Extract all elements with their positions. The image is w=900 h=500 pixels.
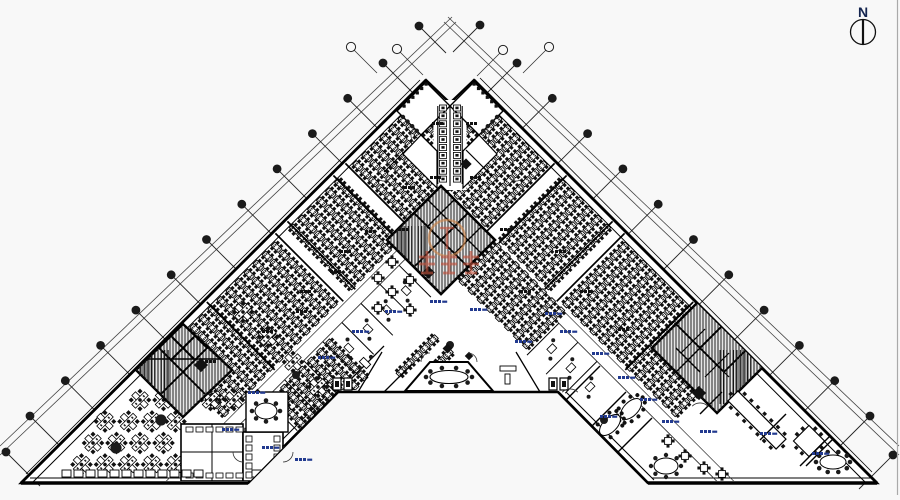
svg-text:N: N <box>858 4 868 20</box>
